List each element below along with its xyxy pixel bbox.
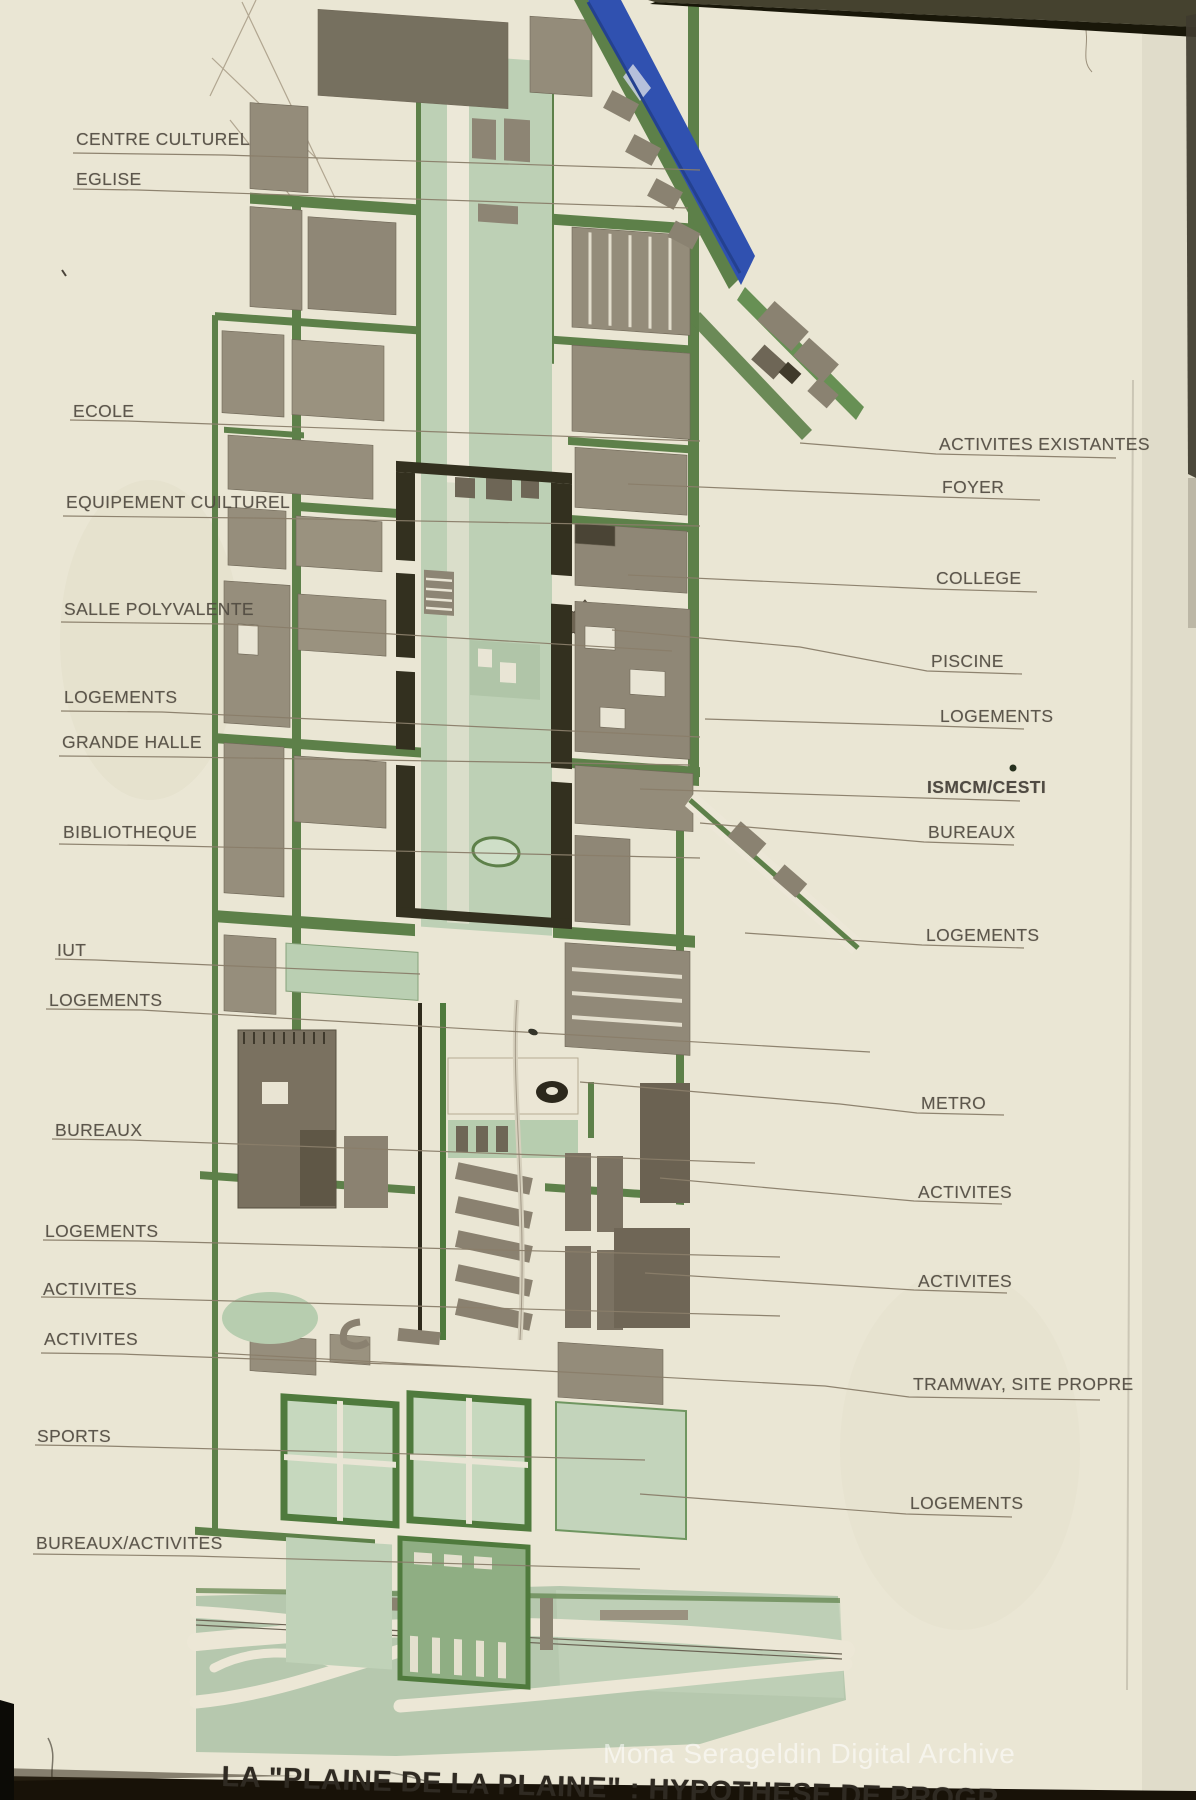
label-activites-right-1: ACTIVITES — [918, 1184, 1012, 1202]
label-centre-culturel: CENTRE CULTUREL — [76, 131, 250, 149]
label-sports: SPORTS — [37, 1428, 111, 1446]
label-logements-left-3: LOGEMENTS — [45, 1223, 158, 1241]
label-piscine: PISCINE — [931, 653, 1004, 671]
watermark: Mona Serageldin Digital Archive — [603, 1738, 1015, 1770]
map-graphic — [0, 0, 1196, 1800]
label-college: COLLEGE — [936, 570, 1021, 588]
label-bureaux-activites: BUREAUX/ACTIVITES — [36, 1535, 223, 1553]
label-ismcm-cesti: ISMCM/CESTI — [927, 779, 1046, 797]
label-salle-polyvalente: SALLE POLYVALENTE — [64, 601, 254, 619]
label-eglise: EGLISE — [76, 171, 142, 189]
label-grande-halle: GRANDE HALLE — [62, 734, 202, 752]
iut-building — [286, 943, 418, 1000]
label-logements-left-1: LOGEMENTS — [64, 689, 177, 707]
label-ecole: ECOLE — [73, 403, 134, 421]
label-bibliotheque: BIBLIOTHEQUE — [63, 824, 197, 842]
label-logements-left-2: LOGEMENTS — [49, 992, 162, 1010]
label-foyer: FOYER — [942, 479, 1004, 497]
label-activites-left-1: ACTIVITES — [43, 1281, 137, 1299]
label-bureaux-right: BUREAUX — [928, 824, 1015, 842]
label-activites-existantes: ACTIVITES EXISTANTES — [939, 436, 1150, 454]
label-logements-right-1: LOGEMENTS — [940, 708, 1053, 726]
label-activites-right-2: ACTIVITES — [918, 1273, 1012, 1291]
label-iut: IUT — [57, 942, 86, 960]
label-metro: METRO — [921, 1095, 986, 1113]
label-logements-right-2: LOGEMENTS — [926, 927, 1039, 945]
scanned-slide: CENTRE CULTUREL EGLISE ECOLE EQUIPEMENT … — [0, 0, 1196, 1800]
label-bureaux-left: BUREAUX — [55, 1122, 142, 1140]
label-logements-right-3: LOGEMENTS — [910, 1495, 1023, 1513]
label-tramway-site-propre: TRAMWAY, SITE PROPRE — [913, 1376, 1134, 1394]
label-equipement-culturel: EQUIPEMENT CUILTUREL — [66, 494, 290, 512]
label-activites-left-2: ACTIVITES — [44, 1331, 138, 1349]
